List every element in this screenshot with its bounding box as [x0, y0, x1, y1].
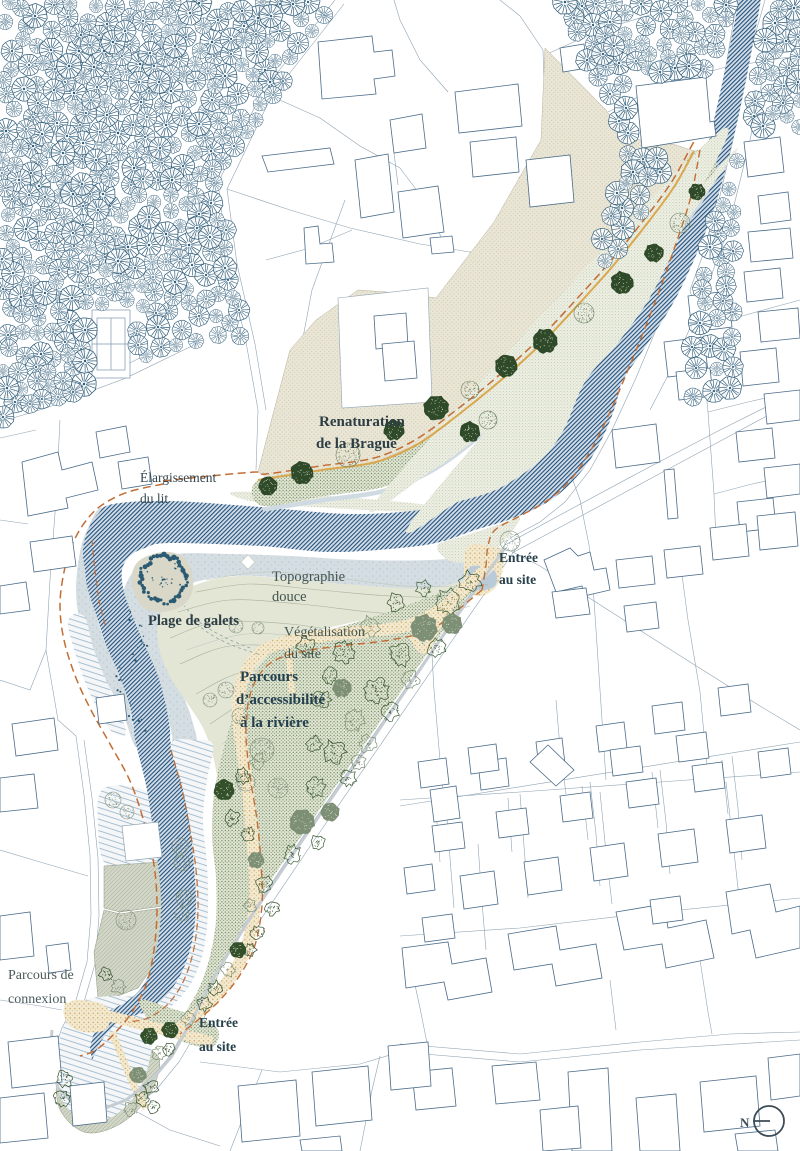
svg-text:Entrée: Entrée: [199, 1015, 238, 1030]
svg-text:Parcours de: Parcours de: [8, 968, 74, 983]
svg-text:de la Brague: de la Brague: [316, 436, 397, 452]
svg-text:Topographie: Topographie: [272, 569, 345, 585]
svg-text:Plage de galets: Plage de galets: [148, 613, 239, 629]
svg-text:N: N: [740, 1115, 750, 1130]
svg-text:Parcours: Parcours: [240, 669, 298, 685]
svg-text:à la rivière: à la rivière: [240, 715, 309, 731]
svg-text:au site: au site: [199, 1039, 236, 1054]
svg-text:connexion: connexion: [8, 992, 66, 1007]
svg-text:du site: du site: [284, 647, 321, 662]
svg-text:du lit: du lit: [140, 491, 168, 506]
svg-text:douce: douce: [272, 589, 307, 605]
svg-text:Élargissement: Élargissement: [140, 470, 216, 485]
svg-text:Végétalisation: Végétalisation: [284, 625, 365, 640]
svg-text:au site: au site: [499, 572, 536, 587]
svg-text:Renaturation: Renaturation: [319, 414, 405, 430]
svg-text:Entrée: Entrée: [499, 550, 538, 565]
svg-text:d’accessibilité: d’accessibilité: [236, 692, 325, 708]
